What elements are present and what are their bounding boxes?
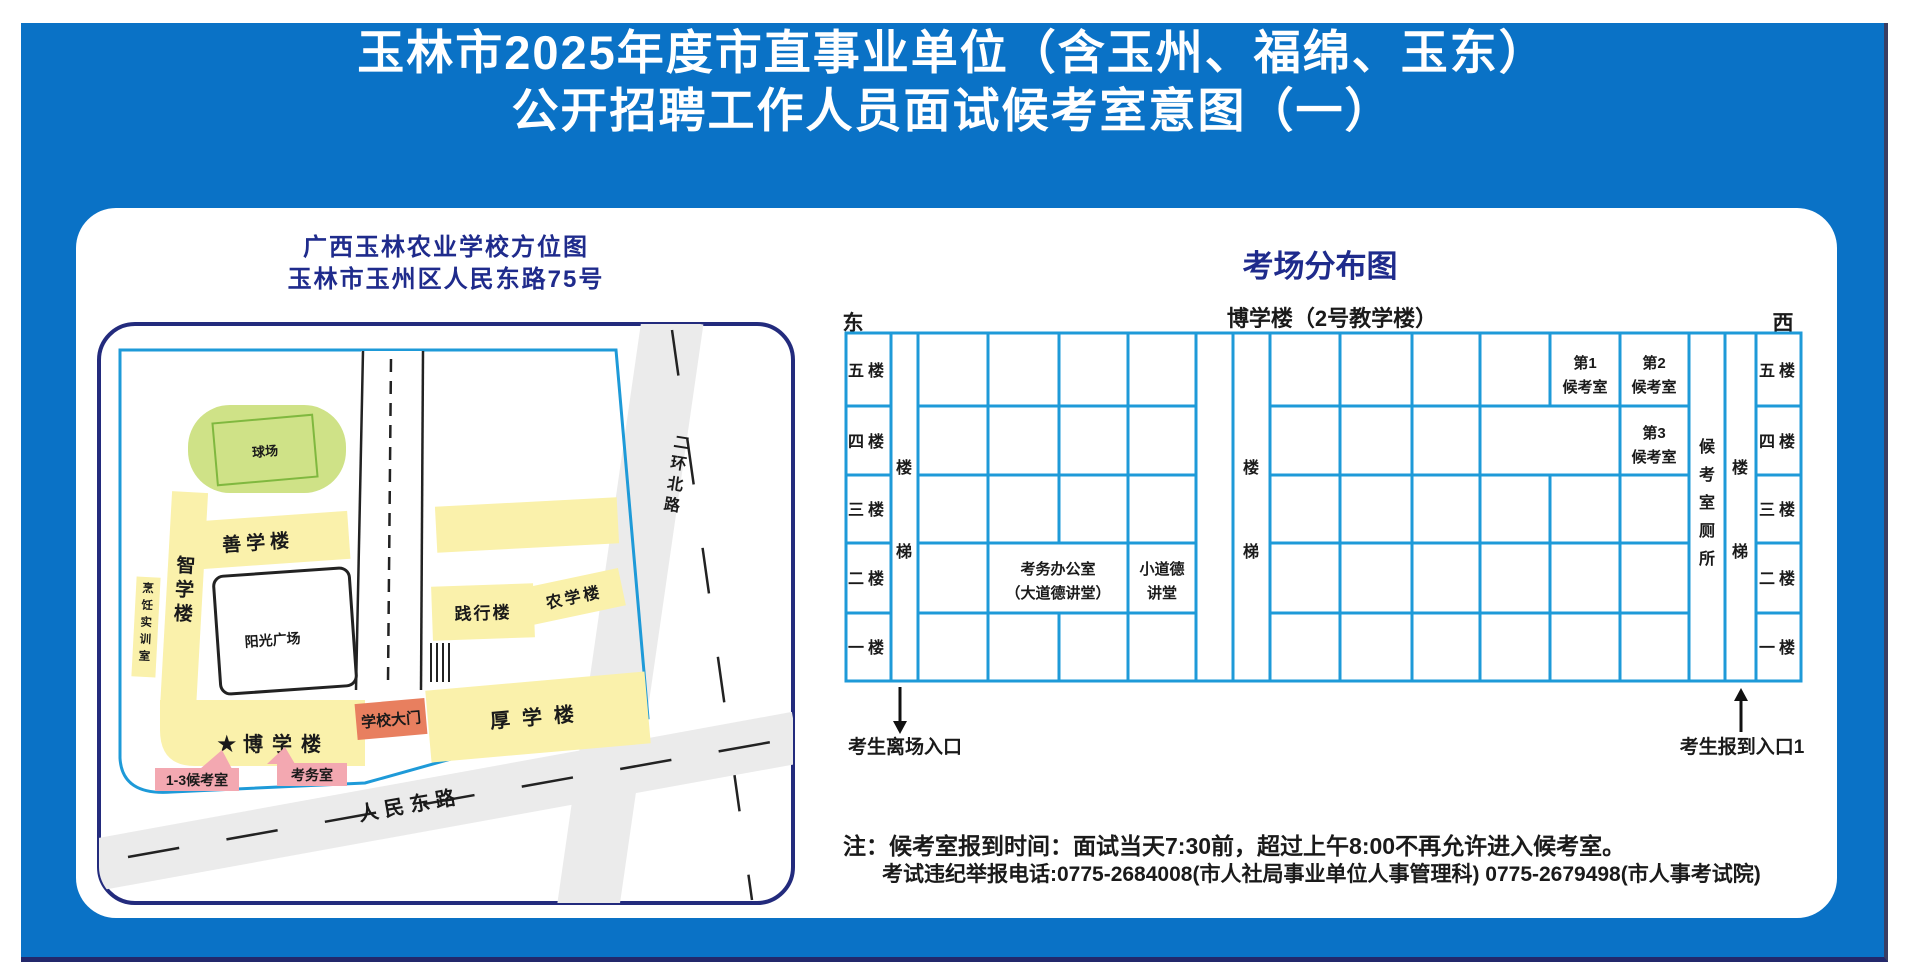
floor-left-4: 四楼 [848, 432, 888, 451]
floor-left-3: 三楼 [848, 500, 888, 519]
waiting-room-3-line2: 候考室 [1631, 448, 1676, 466]
waiting-room-3: 第3 候考室 [1631, 424, 1676, 466]
jianxing-label: 践行楼 [454, 602, 512, 624]
stair-left-ti: 梯 [896, 542, 912, 561]
waiting-room-3-line1: 第3 [1642, 424, 1665, 442]
waiting-room-2-line2: 候考室 [1631, 378, 1676, 396]
stairwell-middle: 楼 梯 [1243, 458, 1259, 561]
notes: 注：候考室报到时间：面试当天7:30前，超过上午8:00不再允许进入候考室。 考… [843, 833, 1761, 886]
exam-office-line2: （大道德讲堂） [1005, 584, 1110, 602]
waiting-room-1-line2: 候考室 [1562, 378, 1607, 396]
small-lecture-room: 小道德 讲堂 [1139, 560, 1184, 602]
east-label: 东 [843, 311, 864, 335]
small-lecture-line1: 小道德 [1139, 560, 1184, 578]
floor-plan: 考场分布图 博学楼（2号教学楼） 东 西 五楼 四楼 三楼 二楼 一楼 五楼 四… [843, 249, 1805, 758]
entry-arrow [1734, 688, 1748, 732]
map-title-line1: 广西玉林农业学校方位图 [303, 233, 589, 261]
waiting-room-2: 第2 候考室 [1631, 354, 1676, 396]
zhixue-label: 智学楼 [173, 554, 196, 626]
waiting-room-1: 第1 候考室 [1562, 354, 1607, 396]
boxue-building: ★ 博学楼 [160, 700, 365, 766]
waiting-room-2-line1: 第2 [1642, 354, 1665, 372]
floor-right-5: 五楼 [1759, 361, 1799, 380]
exam-office-line1: 考务办公室 [1020, 560, 1095, 578]
exit-arrow [893, 687, 907, 734]
floor-right-1: 一楼 [1759, 638, 1799, 657]
note-line2: 考试违纪举报电话:0775-2684008(市人社局事业单位人事管理科) 077… [882, 862, 1761, 886]
floor-left-1: 一楼 [848, 638, 888, 657]
floor-right-2: 二楼 [1759, 569, 1799, 588]
waiting-rooms-callout-label: 1-3候考室 [166, 772, 228, 788]
floor-left-5: 五楼 [848, 361, 888, 380]
exam-office-callout-label: 考务室 [291, 767, 333, 783]
stairwell-left: 楼 梯 [896, 458, 912, 561]
campus-map: 广西玉林农业学校方位图 玉林市玉州区人民东路75号 [83, 233, 801, 928]
floor-left-2: 二楼 [848, 569, 888, 588]
floor-plan-title: 考场分布图 [1243, 249, 1398, 284]
unnamed-building [435, 497, 619, 552]
floor-right-3: 三楼 [1759, 500, 1799, 519]
ball-field: 球场 [188, 405, 346, 493]
small-lecture-line2: 讲堂 [1147, 584, 1177, 602]
floor-right-4: 四楼 [1759, 432, 1799, 451]
jianxing-building: 践行楼 [431, 583, 535, 641]
building-label: 博学楼（2号教学楼） [1227, 306, 1437, 331]
note-line1: 注：候考室报到时间：面试当天7:30前，超过上午8:00不再允许进入候考室。 [843, 833, 1625, 859]
waiting-room-toilet-label: 候考室厕所 [1699, 437, 1716, 568]
entry-label: 考生报到入口1 [1680, 735, 1805, 758]
exit-label: 考生离场入口 [848, 735, 962, 758]
map-title-line2: 玉林市玉州区人民东路75号 [288, 265, 605, 293]
stair-right-lou: 楼 [1732, 458, 1748, 477]
stair-right-ti: 梯 [1732, 542, 1748, 561]
stair-left-lou: 楼 [896, 458, 912, 477]
diagram-canvas: 广西玉林农业学校方位图 玉林市玉州区人民东路75号 [0, 0, 1905, 975]
school-gate: 学校大门 [355, 698, 428, 740]
stair-mid-ti: 梯 [1243, 542, 1259, 561]
sunshine-plaza: 阳光广场 [213, 567, 357, 694]
ball-field-label: 球场 [252, 443, 279, 460]
exam-office-room: 考务办公室 （大道德讲堂） [1005, 560, 1110, 602]
stair-mid-lou: 楼 [1243, 458, 1259, 477]
waiting-room-1-line1: 第1 [1573, 354, 1596, 372]
stairwell-right: 楼 梯 [1732, 458, 1748, 561]
